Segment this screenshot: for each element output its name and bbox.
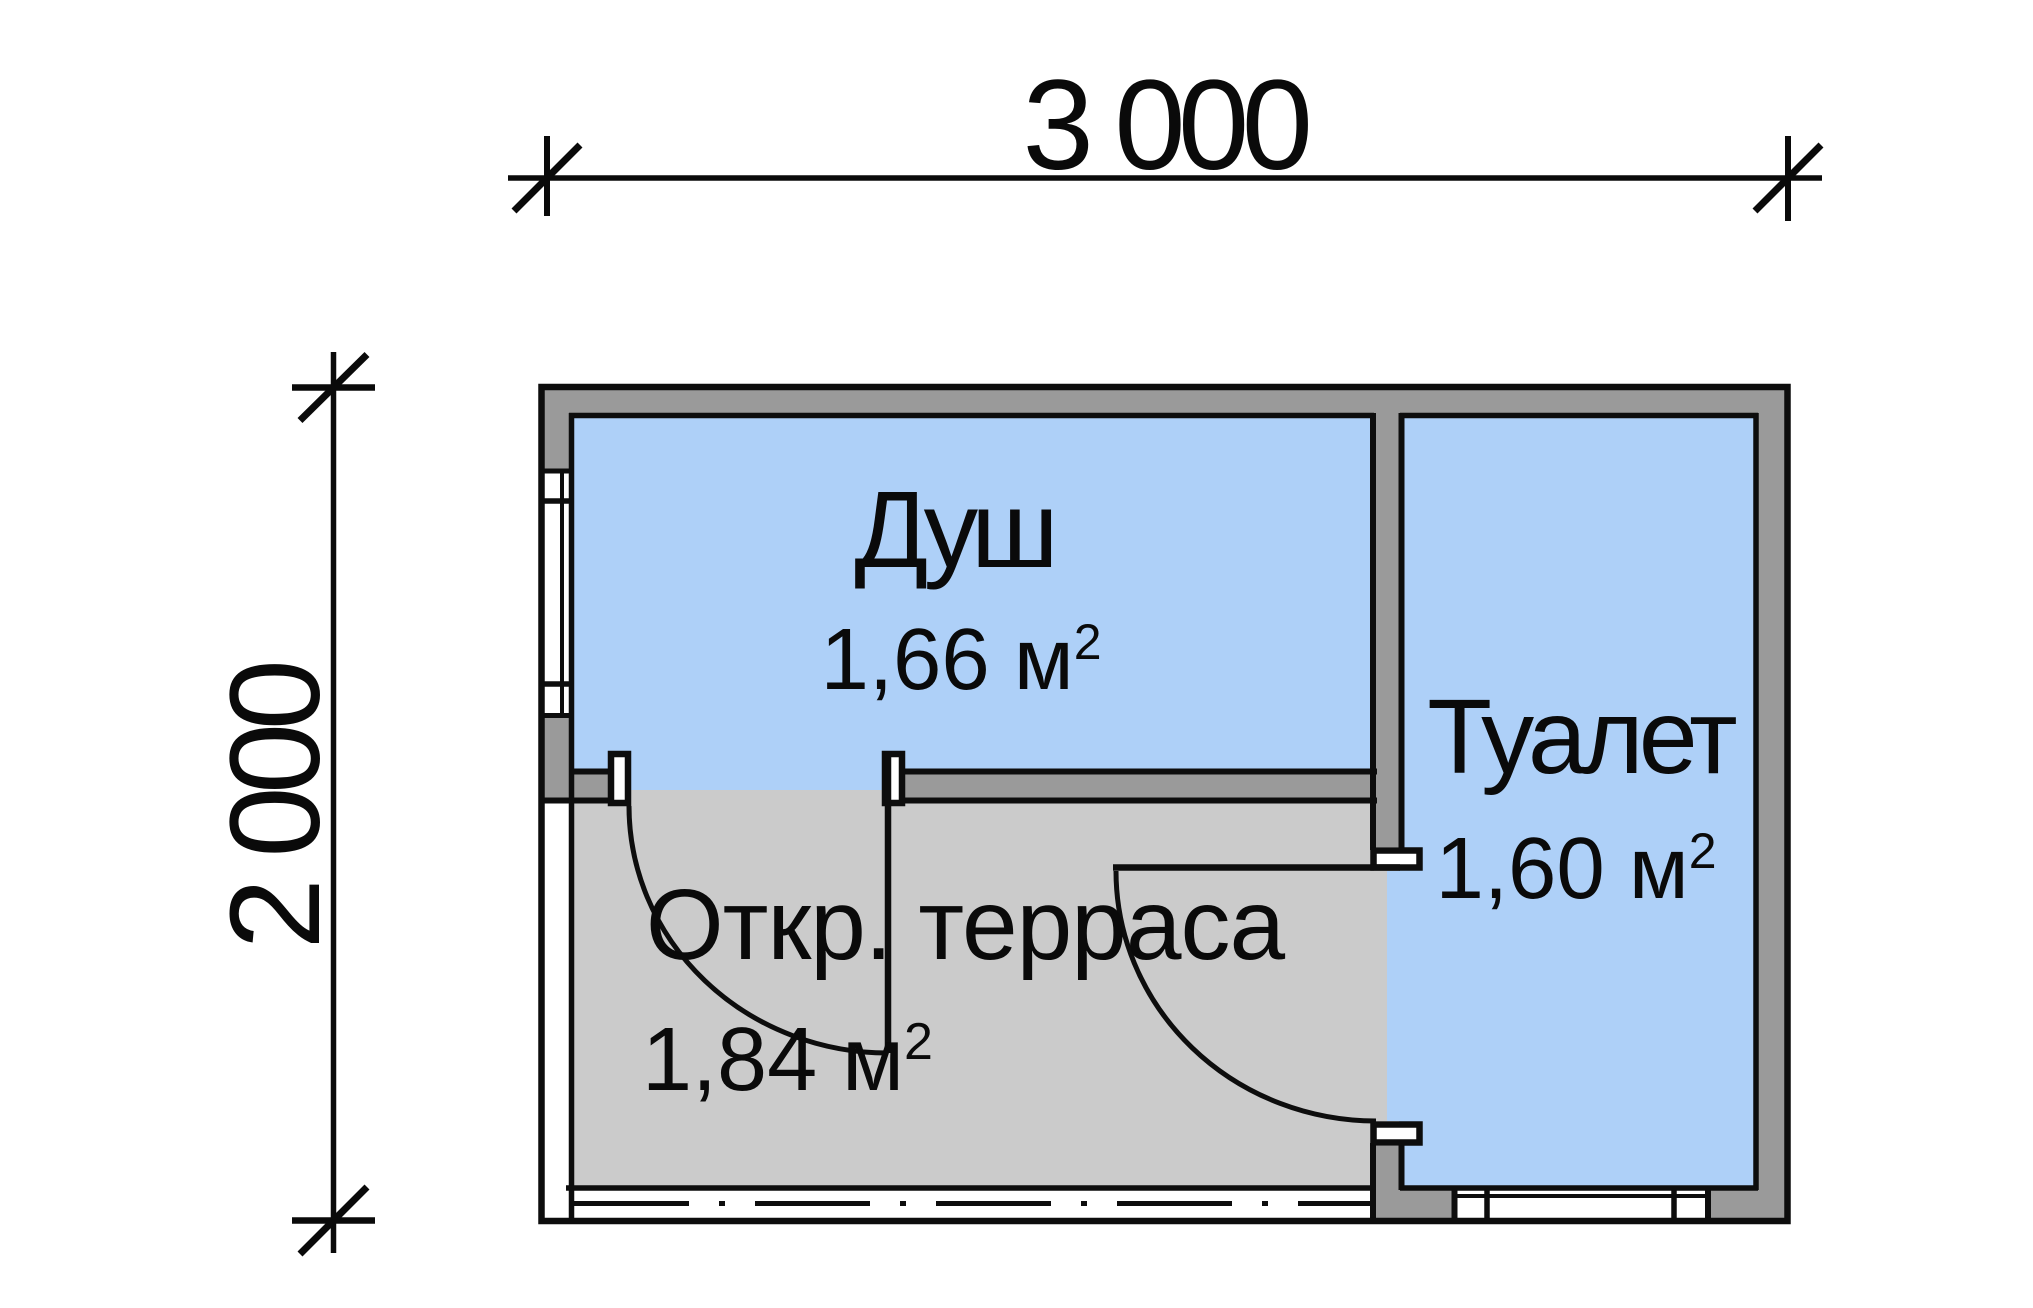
svg-text:1,84 м2: 1,84 м2 (642, 1010, 933, 1110)
svg-text:3 000: 3 000 (1023, 54, 1309, 197)
svg-text:Откр. терраса: Откр. терраса (646, 869, 1286, 981)
svg-text:Туалет: Туалет (1427, 678, 1736, 796)
svg-text:Душ: Душ (854, 469, 1051, 591)
svg-text:2 000: 2 000 (204, 663, 347, 949)
svg-text:1,66 м2: 1,66 м2 (820, 611, 1101, 708)
svg-text:1,60 м2: 1,60 м2 (1435, 820, 1716, 917)
